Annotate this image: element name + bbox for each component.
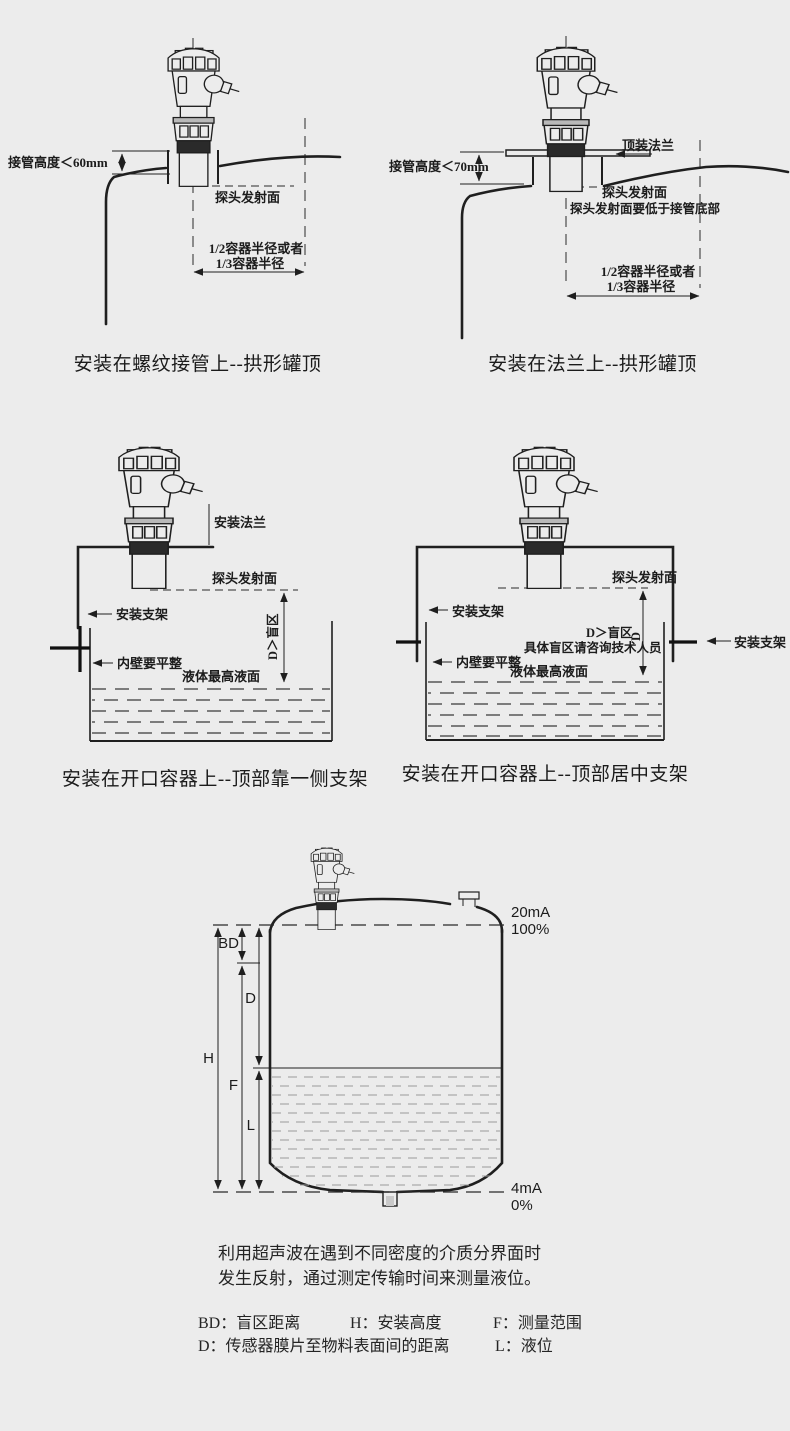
bottom-percent-label: 0% [511,1197,533,1214]
bracket-label-right: 安装支架 [734,635,786,650]
radius-label-1: 1/2容器半径或者 [209,241,304,256]
blind-zone-label: D＞盲区 [265,613,280,660]
blind-zone-d-label: D [629,632,643,641]
liquid-dashes [272,1077,500,1185]
principle-description: 利用超声波在遇到不同密度的介质分界面时 发生反射，通过测定传输时间来测量液位。 [218,1241,541,1291]
wall-note-label: 内壁要平整 [117,656,183,671]
diagram-open-vessel-side-bracket: 安装法兰 探头发射面 安装支架 内壁要平整 液体最高液面 D＞盲区 [20,430,400,760]
legend-h: H：安装高度 [350,1309,442,1333]
caption-flange-mount: 安装在法兰上--拱形罐顶 [395,349,790,376]
probe-face-label: 探头发射面 [602,185,667,200]
caption-threaded-nozzle: 安装在螺纹接管上--拱形罐顶 [0,349,395,376]
installation-diagram-page: 接管高度＜60mm 探头发射面 1/2容器半径或者 1/3容器半径 安装在螺纹接… [0,0,790,1431]
ultrasonic-sensor-icon [168,48,242,186]
ultrasonic-sensor-icon [311,848,356,930]
l-label: L [247,1117,255,1134]
probe-face-note: 探头发射面要低于接管底部 [570,201,721,216]
bracket-label-left: 安装支架 [452,604,504,619]
diagram-measuring-range: BD D H F L 20mA 100% 4mA 0% [190,840,610,1230]
top-current-label: 20mA [511,904,550,921]
legend-d: D：传感器膜片至物料表面间的距离 [198,1332,450,1356]
tank-roof-left [106,168,166,324]
legend-f: F：测量范围 [493,1309,582,1333]
caption-open-vessel-center: 安装在开口容器上--顶部居中支架 [399,759,691,786]
tank-roof-right [604,166,788,186]
bracket-label: 安装支架 [116,607,168,622]
probe-face-label: 探头发射面 [612,570,677,585]
top-percent-label: 100% [511,921,549,938]
bd-label: BD [218,935,239,952]
diagram-threaded-nozzle: 接管高度＜60mm 探头发射面 1/2容器半径或者 1/3容器半径 [0,30,395,348]
pipe-height-label: 接管高度＜70mm [389,159,489,174]
tank-roof-right [220,156,340,166]
d-label: D [245,990,256,1007]
radius-label-2: 1/3容器半径 [607,279,676,294]
top-nozzle [459,892,479,907]
liquid-dashes [428,682,662,736]
tank-dome-right [477,907,502,932]
description-line-2: 发生反射，通过测定传输时间来测量液位。 [218,1266,541,1291]
max-level-label: 液体最高液面 [182,669,260,684]
legend-l: L：液位 [495,1332,553,1356]
ultrasonic-sensor-icon [119,447,206,588]
tank-dome-left [270,899,450,932]
top-flange-label: 顶装法兰 [622,138,674,153]
tank-roof-left [462,186,531,338]
mount-flange-label: 安装法兰 [214,515,266,530]
pipe-height-label: 接管高度＜60mm [8,155,108,170]
dimension-lines [218,928,260,1189]
description-line-1: 利用超声波在遇到不同密度的介质分界面时 [218,1241,541,1266]
ultrasonic-sensor-icon [537,47,621,191]
ultrasonic-sensor-icon [514,447,601,588]
tank-body [270,930,502,1192]
bottom-current-label: 4mA [511,1180,542,1197]
blind-zone-label: D＞盲区 [586,625,633,640]
diagram-open-vessel-center-bracket: 探头发射面 安装支架 安装支架 D＞盲区 D 具体盲区请咨询技术人员 内壁要平整… [390,430,790,760]
diagram-flange-mount: 顶装法兰 接管高度＜70mm 探头发射面 探头发射面要低于接管底部 1/2容器半… [388,30,790,348]
liquid-dashes [92,689,330,733]
drain-nozzle [383,1192,397,1206]
h-label: H [203,1050,214,1067]
probe-face-label: 探头发射面 [212,571,277,586]
blind-zone-note: 具体盲区请咨询技术人员 [523,640,662,655]
max-level-label: 液体最高液面 [510,664,588,679]
legend-bd: BD：盲区距离 [198,1309,300,1333]
f-label: F [229,1077,238,1094]
caption-open-vessel-side: 安装在开口容器上--顶部靠一侧支架 [25,764,405,791]
radius-label-1: 1/2容器半径或者 [601,264,696,279]
probe-face-label: 探头发射面 [215,190,280,205]
radius-label-2: 1/3容器半径 [216,256,285,271]
